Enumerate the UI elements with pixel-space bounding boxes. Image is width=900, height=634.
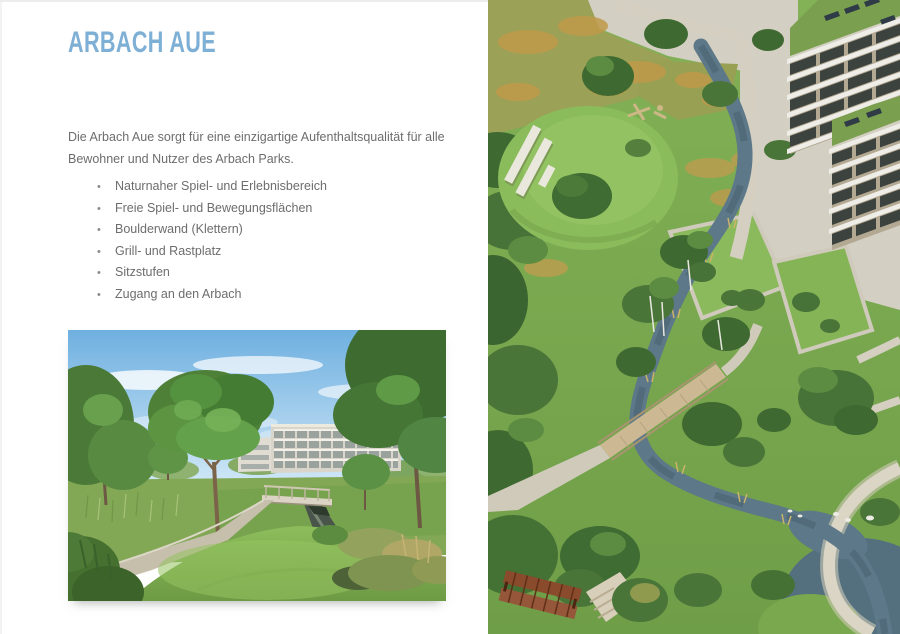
bullet-icon: • bbox=[97, 247, 115, 258]
feature-label: Freie Spiel- und Bewegungsflächen bbox=[115, 202, 312, 215]
feature-item: • Boulderwand (Klettern) bbox=[68, 223, 448, 236]
bullet-icon: • bbox=[97, 268, 115, 279]
intro-text: Die Arbach Aue sorgt für eine einzigarti… bbox=[68, 127, 470, 170]
feature-label: Zugang an den Arbach bbox=[115, 288, 242, 301]
feature-label: Grill- und Rastplatz bbox=[115, 245, 221, 258]
feature-list: • Naturnaher Spiel- und Erlebnisbereich … bbox=[68, 180, 448, 309]
feature-item: • Naturnaher Spiel- und Erlebnisbereich bbox=[68, 180, 448, 193]
bullet-icon: • bbox=[97, 290, 115, 301]
feature-label: Naturnaher Spiel- und Erlebnisbereich bbox=[115, 180, 327, 193]
bullet-icon: • bbox=[97, 182, 115, 193]
park-ground-view-image bbox=[68, 330, 446, 601]
bullet-icon: • bbox=[97, 225, 115, 236]
page-title: ARBACH AUE bbox=[68, 26, 216, 60]
text-column: ARBACH AUE Die Arbach Aue sorgt für eine… bbox=[68, 0, 473, 634]
feature-item: • Zugang an den Arbach bbox=[68, 288, 448, 301]
feature-label: Boulderwand (Klettern) bbox=[115, 223, 243, 236]
park-aerial-view-image bbox=[488, 0, 900, 634]
feature-item: • Freie Spiel- und Bewegungsflächen bbox=[68, 202, 448, 215]
feature-item: • Sitzstufen bbox=[68, 266, 448, 279]
bullet-icon: • bbox=[97, 204, 115, 215]
brochure-page: ARBACH AUE Die Arbach Aue sorgt für eine… bbox=[0, 0, 900, 634]
feature-item: • Grill- und Rastplatz bbox=[68, 245, 448, 258]
ground-view-render bbox=[68, 330, 446, 601]
feature-label: Sitzstufen bbox=[115, 266, 170, 279]
aerial-view-render bbox=[488, 0, 900, 634]
